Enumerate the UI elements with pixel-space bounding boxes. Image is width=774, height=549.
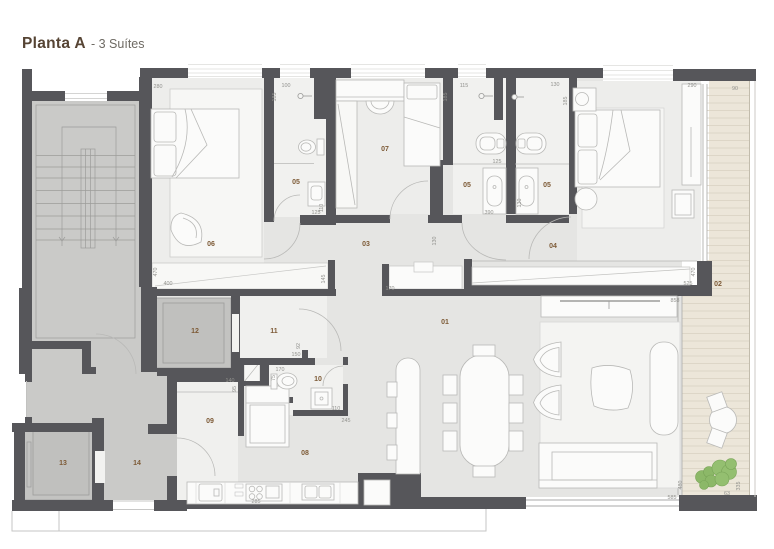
svg-text:09: 09 <box>206 418 214 425</box>
svg-text:13: 13 <box>59 460 67 467</box>
svg-text:470: 470 <box>153 268 159 277</box>
svg-text:110: 110 <box>319 204 325 213</box>
svg-text:280: 280 <box>154 84 163 90</box>
svg-text:92: 92 <box>296 343 302 349</box>
svg-text:05: 05 <box>543 182 551 189</box>
svg-text:08: 08 <box>301 450 309 457</box>
svg-text:75: 75 <box>271 375 277 381</box>
svg-text:145: 145 <box>321 275 327 284</box>
svg-text:90: 90 <box>732 86 738 92</box>
svg-text:10: 10 <box>314 376 322 383</box>
svg-text:- 3 Suítes: - 3 Suítes <box>91 37 145 51</box>
svg-text:585: 585 <box>668 495 677 501</box>
svg-text:125: 125 <box>493 159 502 165</box>
svg-text:04: 04 <box>549 243 557 250</box>
svg-text:480: 480 <box>678 481 684 490</box>
svg-text:05: 05 <box>292 179 300 186</box>
svg-text:14: 14 <box>133 460 141 467</box>
svg-text:130: 130 <box>551 82 560 88</box>
svg-text:170: 170 <box>386 286 395 292</box>
svg-text:12: 12 <box>191 328 199 335</box>
svg-text:110: 110 <box>332 406 341 412</box>
svg-text:03: 03 <box>362 241 370 248</box>
svg-text:07: 07 <box>381 146 389 153</box>
svg-text:63: 63 <box>724 491 730 497</box>
svg-text:95: 95 <box>232 386 238 392</box>
svg-text:02: 02 <box>714 281 722 288</box>
svg-text:185: 185 <box>443 93 449 102</box>
svg-text:01: 01 <box>441 319 449 326</box>
svg-text:130: 130 <box>517 199 523 208</box>
svg-text:185: 185 <box>272 93 278 102</box>
svg-text:05: 05 <box>463 182 471 189</box>
svg-text:525: 525 <box>684 281 693 287</box>
svg-text:140: 140 <box>226 378 235 384</box>
svg-text:100: 100 <box>282 83 291 89</box>
svg-text:170: 170 <box>276 367 285 373</box>
svg-text:335: 335 <box>736 482 742 491</box>
svg-text:185: 185 <box>563 97 569 106</box>
svg-text:470: 470 <box>691 268 697 277</box>
svg-text:06: 06 <box>207 241 215 248</box>
svg-text:290: 290 <box>688 83 697 89</box>
svg-text:390: 390 <box>485 210 494 216</box>
svg-text:11: 11 <box>270 328 278 335</box>
svg-text:245: 245 <box>342 418 351 424</box>
svg-text:130: 130 <box>432 237 438 246</box>
svg-text:858: 858 <box>671 298 680 304</box>
svg-text:400: 400 <box>164 281 173 287</box>
svg-text:115: 115 <box>460 83 469 89</box>
svg-text:285: 285 <box>252 499 261 505</box>
svg-text:Planta A: Planta A <box>22 35 86 52</box>
svg-text:150: 150 <box>292 352 301 358</box>
